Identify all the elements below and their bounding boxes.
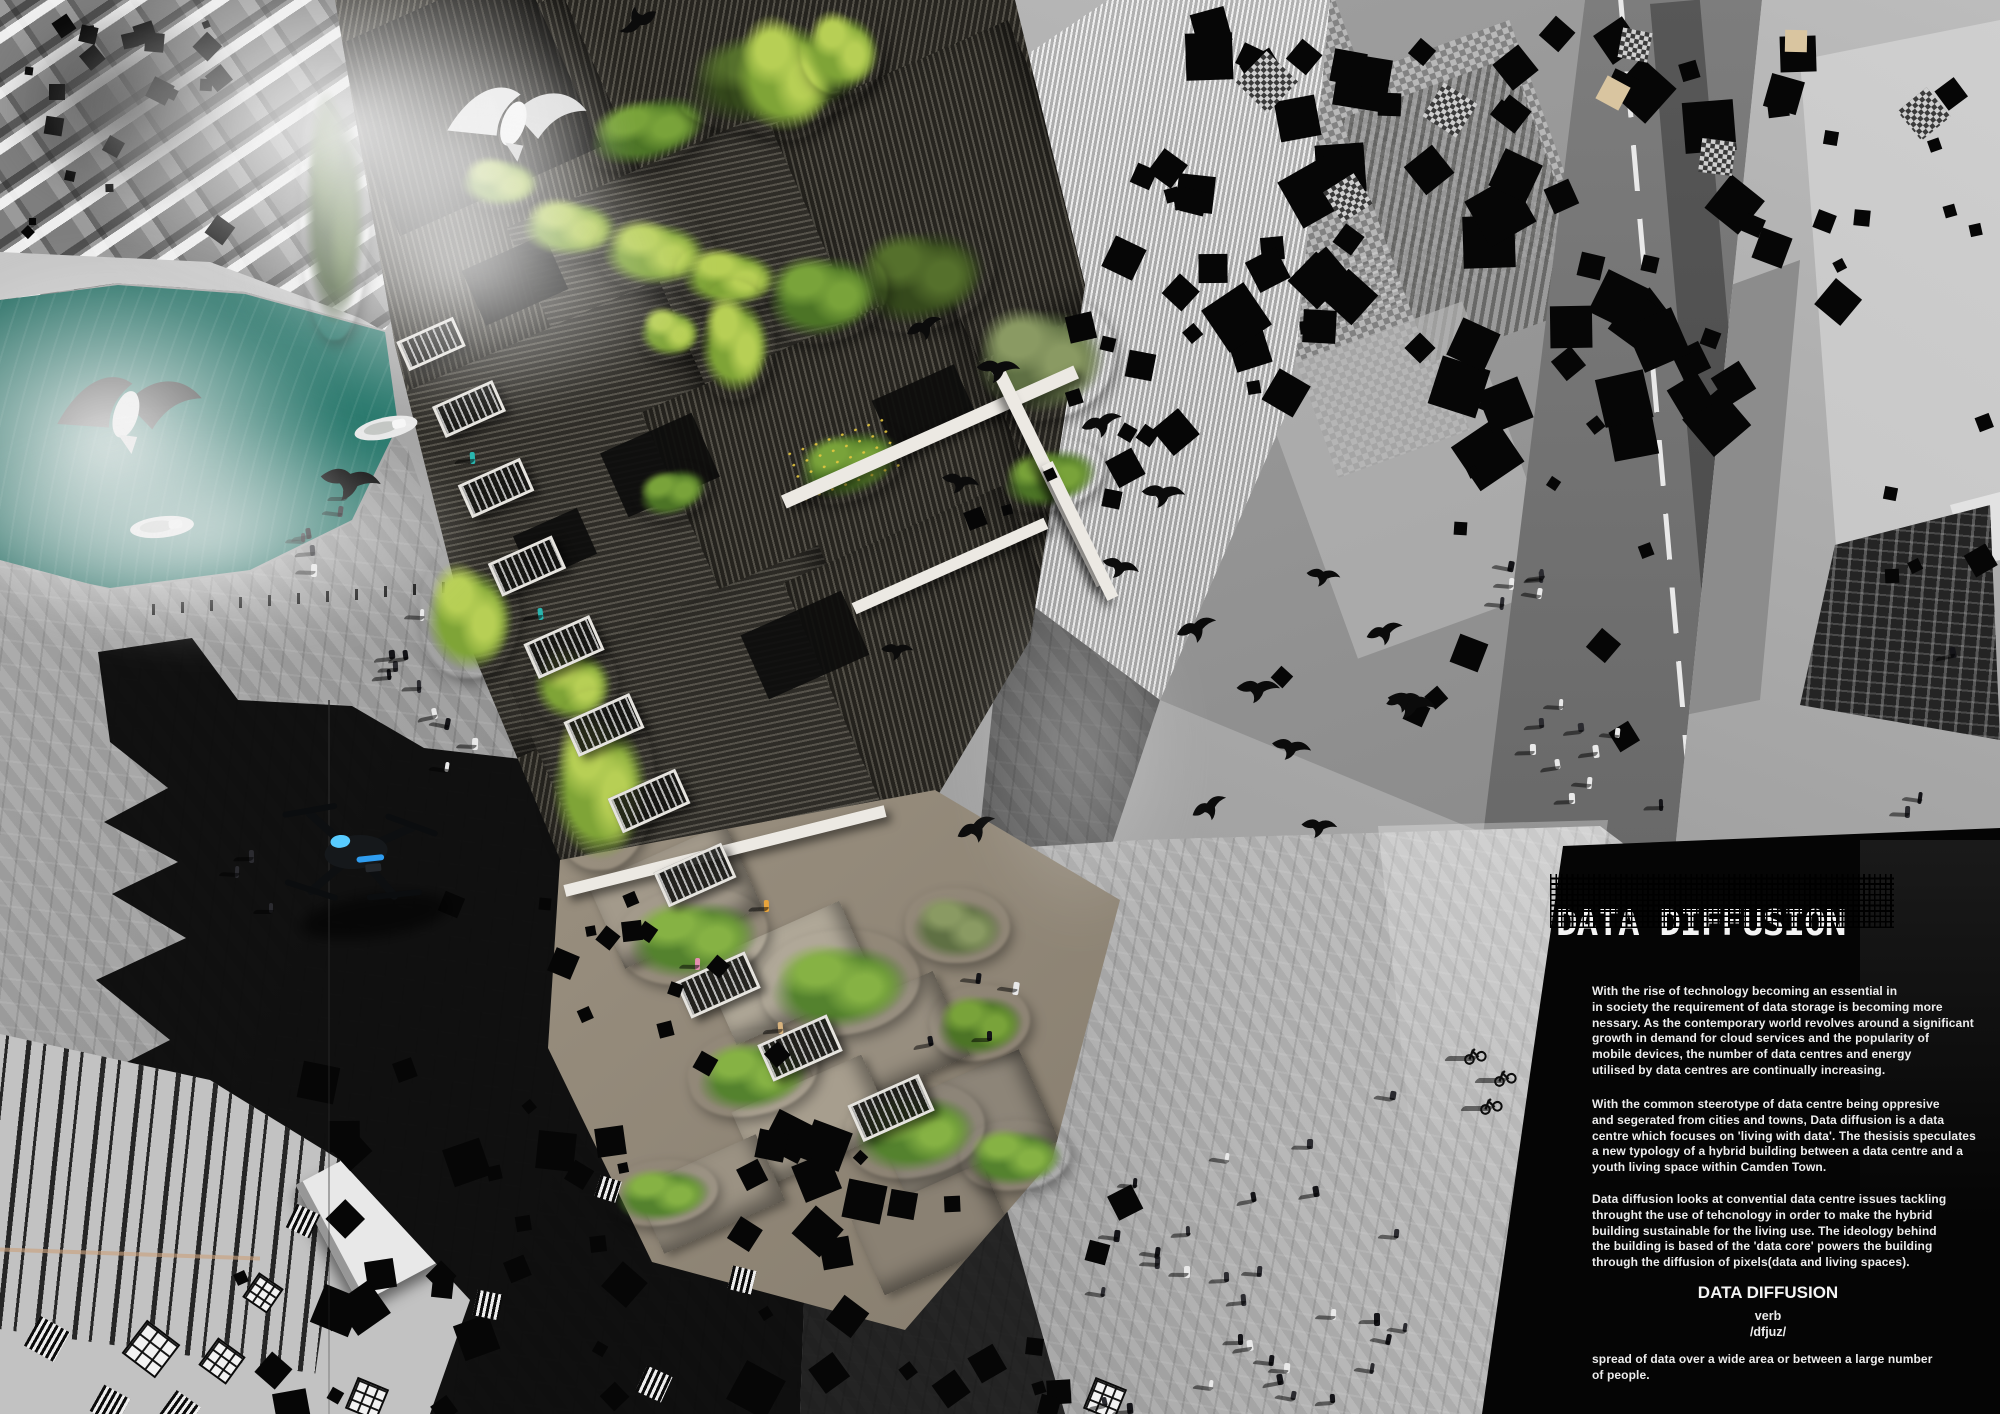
pedestrian-icon [1569,793,1575,804]
pixel-square [1274,94,1322,142]
pedestrian-icon [1402,1323,1408,1333]
fence-post [152,604,155,615]
pedestrian-icon [1186,1225,1191,1236]
pedestrian-icon [1224,1272,1229,1283]
fence-post [268,595,271,606]
pedestrian-icon [1577,723,1584,733]
pixel-square [538,897,551,910]
pedestrian-icon [417,680,421,693]
fence-post [413,584,416,595]
pixel-square [594,1125,627,1158]
approach-paragraph: Data diffusion looks at convential data … [1592,1192,1996,1271]
pedestrian-icon [1374,1313,1380,1326]
pedestrian-icon [249,850,254,863]
pixel-square [1037,1394,1062,1414]
fence-post [355,589,358,600]
pedestrian-icon [1539,568,1544,579]
pixel-square [1785,30,1807,52]
pedestrian-icon [1184,1266,1190,1278]
pixel-square [617,1162,629,1174]
fence-post [326,591,329,602]
pedestrian-icon [1238,1334,1244,1346]
pedestrian-icon [1538,718,1544,728]
pedestrian-icon [1132,1178,1137,1189]
pedestrian-icon [1250,1191,1257,1202]
pixel-square [589,1235,607,1253]
seagull-icon [422,53,608,186]
pixel-square [1101,488,1122,509]
pixel-square [535,1130,577,1172]
bird-icon [1078,407,1126,442]
pixel-square [1550,306,1593,349]
pixel-square [1329,48,1368,87]
pixel-square [1125,349,1157,381]
fence-post [239,597,242,608]
pixel-square [105,184,114,193]
pixel-square [473,1290,504,1321]
bird-icon [1233,672,1283,708]
vegetation [905,888,1010,963]
pedestrian-icon [471,738,477,751]
pixel-square [78,24,98,44]
presentation-board: DATA DIFFUSION With the rise of technolo… [0,0,2000,1414]
pixel-square [49,84,65,100]
pixel-square [1454,521,1468,535]
concept-paragraph: With the common steerotype of data centr… [1592,1097,1996,1176]
pedestrian-icon [1283,1363,1289,1374]
pixel-square [841,1178,887,1224]
pedestrian-icon [1306,1139,1312,1149]
definition-term: DATA DIFFUSION [1592,1283,1944,1303]
pixel-square [1595,369,1653,427]
seagull-icon [40,334,217,485]
pedestrian-icon [987,1031,992,1041]
pedestrian-icon [444,762,449,772]
fence-post [384,586,387,597]
pixel-square [272,1389,311,1414]
resident-figure [695,958,700,970]
pixel-square [64,170,76,182]
fence-post [181,602,184,613]
pixel-square [29,218,36,225]
definition-part-of-speech: verb [1592,1309,1944,1323]
pixel-square [762,1135,776,1149]
definition-meaning: spread of data over a wide area or betwe… [1592,1352,1996,1384]
pixel-square [1853,210,1871,228]
pedestrian-icon [337,506,343,517]
pixel-square [887,1189,919,1221]
pixel-square [44,116,64,136]
pixel-square [1823,130,1839,146]
pedestrian-icon [1389,1091,1396,1101]
resident-figure [764,900,769,912]
fence-post [297,593,300,604]
pixel-square [1064,311,1097,344]
fence-post [210,600,213,611]
pixel-square [1883,486,1898,501]
vegetation [800,0,885,95]
pedestrian-icon [311,564,317,577]
pedestrian-icon [1246,1340,1254,1352]
pixel-square [25,67,34,76]
bird-icon [1384,688,1422,715]
pixel-square [1025,1337,1043,1355]
pixel-square [1185,32,1233,80]
pixel-square [585,925,596,936]
pedestrian-icon [393,661,398,672]
pedestrian-icon [1659,799,1664,811]
pixel-square [296,1060,339,1103]
pixel-square [515,1215,532,1232]
drone-icon [266,780,447,927]
pixel-square [944,1196,961,1213]
pixel-square [1885,568,1900,583]
pixel-square [1698,138,1736,176]
pedestrian-icon [388,649,395,659]
definition-pronunciation: /dfjuz/ [1592,1325,1944,1339]
pixel-square [1246,380,1261,395]
pedestrian-icon [1329,1394,1334,1403]
pixel-square [1299,321,1313,335]
pixel-square [1199,254,1228,283]
title-dot-matrix-overlay [1550,874,1894,928]
vegetation [635,300,705,360]
resident-figure [778,1022,784,1034]
pedestrian-icon [1904,806,1910,818]
pedestrian-icon [1530,744,1536,755]
pedestrian-icon [1312,1185,1319,1196]
pixel-square [1617,27,1652,62]
resident-figure [470,452,476,464]
pixel-square [1969,223,1983,237]
pedestrian-icon [1113,1230,1120,1242]
intro-paragraph: With the rise of technology becoming an … [1592,984,1996,1079]
